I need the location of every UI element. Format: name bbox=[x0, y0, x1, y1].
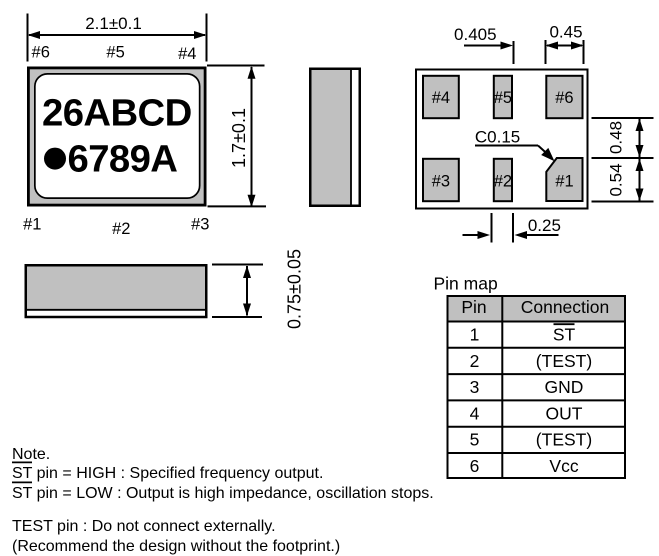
svg-text:GND: GND bbox=[545, 377, 584, 397]
svg-text:0.75±0.05: 0.75±0.05 bbox=[285, 249, 305, 329]
svg-text:#5: #5 bbox=[106, 43, 124, 61]
svg-text:#1: #1 bbox=[23, 216, 41, 234]
svg-text:#3: #3 bbox=[191, 216, 209, 234]
svg-text:0.45: 0.45 bbox=[549, 23, 582, 42]
svg-text:2: 2 bbox=[470, 351, 480, 371]
svg-text:6: 6 bbox=[470, 456, 480, 476]
svg-text:0.25: 0.25 bbox=[528, 216, 561, 235]
svg-text:Note.: Note. bbox=[12, 446, 50, 463]
svg-text:1: 1 bbox=[470, 325, 480, 345]
svg-text:4: 4 bbox=[470, 403, 480, 423]
svg-text:Vcc: Vcc bbox=[549, 456, 578, 476]
svg-text:ST pin = HIGH : Specified freq: ST pin = HIGH : Specified frequency outp… bbox=[12, 465, 323, 482]
svg-text:ST: ST bbox=[553, 325, 576, 345]
svg-text:#2: #2 bbox=[112, 220, 130, 238]
svg-text:Pin map: Pin map bbox=[434, 273, 498, 293]
svg-text:#4: #4 bbox=[432, 89, 450, 107]
svg-text:0.405: 0.405 bbox=[454, 25, 497, 44]
svg-text:0.48: 0.48 bbox=[607, 121, 626, 154]
svg-text:#6: #6 bbox=[555, 89, 573, 107]
svg-text:Pin: Pin bbox=[461, 297, 486, 317]
svg-text:6789A: 6789A bbox=[68, 138, 178, 181]
svg-text:(Recommend the design without: (Recommend the design without the footpr… bbox=[12, 538, 340, 555]
svg-text:#4: #4 bbox=[178, 45, 196, 63]
svg-text:#3: #3 bbox=[432, 173, 450, 191]
svg-text:C0.15: C0.15 bbox=[475, 128, 520, 147]
svg-text:#2: #2 bbox=[494, 173, 512, 191]
svg-text:ST pin = LOW : Output is high: ST pin = LOW : Output is high impedance,… bbox=[12, 485, 434, 502]
svg-text:Connection: Connection bbox=[521, 297, 610, 317]
svg-text:26ABCD: 26ABCD bbox=[42, 92, 192, 135]
svg-text:1.7±0.1: 1.7±0.1 bbox=[229, 108, 249, 168]
svg-text:#5: #5 bbox=[494, 89, 512, 107]
svg-text:TEST pin : Do not connect exte: TEST pin : Do not connect externally. bbox=[12, 518, 276, 535]
svg-text:OUT: OUT bbox=[546, 403, 583, 423]
svg-text:3: 3 bbox=[470, 377, 480, 397]
svg-text:0.54: 0.54 bbox=[607, 163, 626, 196]
svg-text:5: 5 bbox=[470, 430, 480, 450]
svg-text:#1: #1 bbox=[555, 173, 573, 191]
svg-text:(TEST): (TEST) bbox=[536, 351, 592, 371]
svg-text:(TEST): (TEST) bbox=[536, 430, 592, 450]
svg-text:2.1±0.1: 2.1±0.1 bbox=[85, 14, 142, 33]
svg-text:#6: #6 bbox=[32, 43, 50, 61]
